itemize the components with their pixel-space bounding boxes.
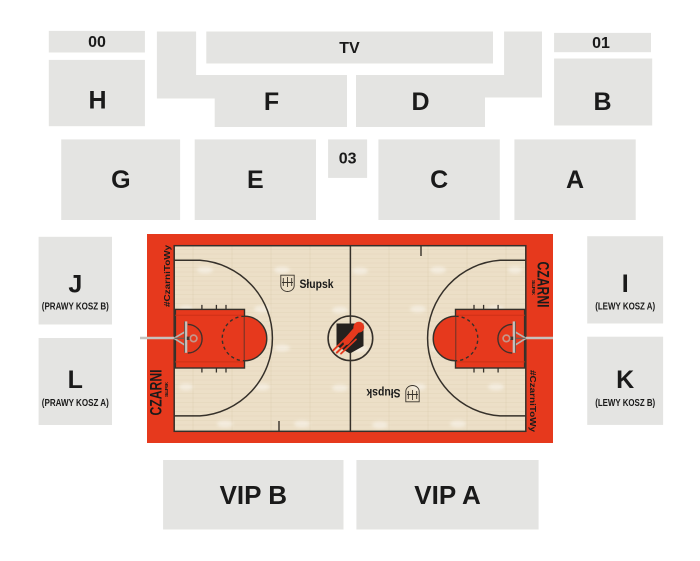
svg-text:L: L [68,366,83,394]
svg-text:(PRAWY KOSZ A): (PRAWY KOSZ A) [42,398,109,409]
svg-text:SŁUPSK: SŁUPSK [164,381,169,397]
svg-text:#CzarniToWy: #CzarniToWy [528,370,537,433]
svg-text:CZARNI: CZARNI [147,370,166,416]
svg-text:(LEWY KOSZ B): (LEWY KOSZ B) [595,398,655,409]
svg-text:C: C [430,166,448,194]
svg-text:D: D [411,88,429,116]
svg-text:TV: TV [339,40,360,57]
svg-text:G: G [111,166,130,194]
svg-text:F: F [264,88,279,116]
svg-text:#CzarniToWy: #CzarniToWy [163,244,172,307]
svg-text:VIP B: VIP B [220,480,287,510]
svg-text:03: 03 [339,151,357,168]
svg-text:B: B [593,88,611,116]
svg-text:A: A [566,166,584,194]
svg-text:E: E [247,166,264,194]
svg-text:I: I [622,270,629,298]
svg-text:01: 01 [592,35,610,52]
svg-text:VIP A: VIP A [414,480,481,510]
svg-text:H: H [88,87,106,115]
svg-text:K: K [616,366,634,394]
svg-text:SŁUPSK: SŁUPSK [531,280,536,296]
svg-text:(PRAWY KOSZ B): (PRAWY KOSZ B) [42,302,109,313]
svg-text:00: 00 [88,34,106,51]
svg-text:(LEWY KOSZ A): (LEWY KOSZ A) [595,302,655,313]
svg-text:J: J [68,271,82,299]
svg-text:Słupsk: Słupsk [300,279,335,291]
svg-text:Słupsk: Słupsk [366,386,401,398]
